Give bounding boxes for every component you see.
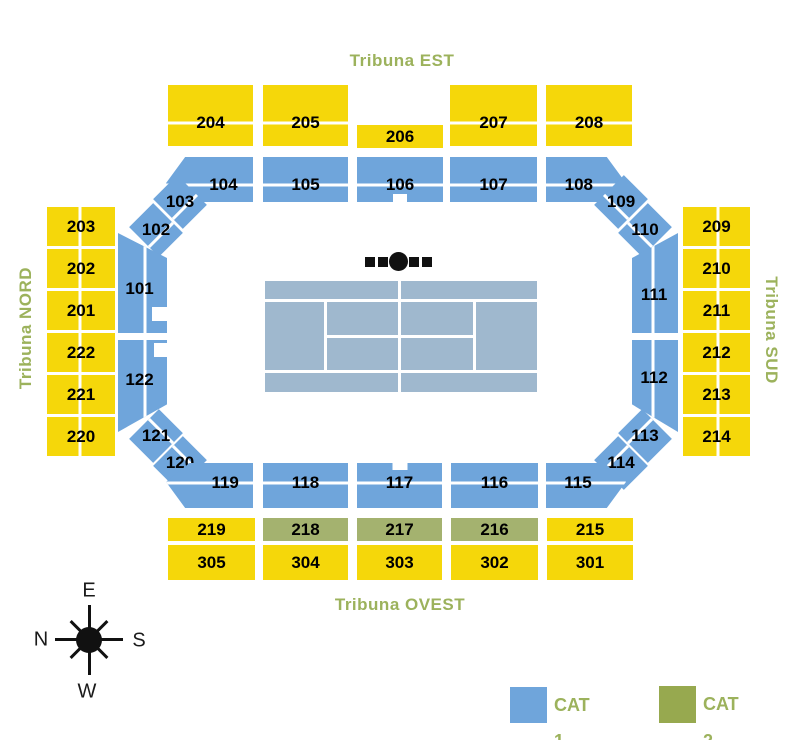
section-label: 205 xyxy=(291,113,319,133)
court-top-alley-line xyxy=(265,299,537,302)
section-label: 112 xyxy=(640,368,667,388)
section-label: 104 xyxy=(209,175,237,195)
section-301[interactable]: 301 xyxy=(547,545,633,580)
section-label: 107 xyxy=(479,175,507,195)
section-217[interactable]: 217 xyxy=(357,518,442,541)
section-label: 204 xyxy=(196,113,224,133)
section-208[interactable]: 208 xyxy=(546,85,632,146)
section-label: 105 xyxy=(291,175,319,195)
section-214[interactable]: 214 xyxy=(683,417,750,456)
marker-square xyxy=(378,257,388,267)
section-216[interactable]: 216 xyxy=(451,518,538,541)
section-label: 220 xyxy=(67,427,95,447)
tribuna-est-label: Tribuna EST xyxy=(350,51,455,71)
section-label: 118 xyxy=(292,473,319,493)
compass-letter-s: S xyxy=(132,630,145,653)
section-218[interactable]: 218 xyxy=(263,518,348,541)
section-212[interactable]: 212 xyxy=(683,333,750,372)
section-label: 110 xyxy=(631,220,658,240)
section-label: 212 xyxy=(702,343,730,363)
section-303[interactable]: 303 xyxy=(357,545,442,580)
section-label: 217 xyxy=(385,520,413,540)
section-107[interactable]: 107 xyxy=(450,157,537,202)
court-center-service-line xyxy=(326,335,475,338)
section-label: 305 xyxy=(197,553,225,573)
compass-hub xyxy=(76,627,102,653)
section-label: 122 xyxy=(125,370,153,390)
tennis-court xyxy=(265,281,537,392)
section-label: 202 xyxy=(67,259,95,279)
tribuna-nord-label: Tribuna NORD xyxy=(16,267,36,389)
section-220[interactable]: 220 xyxy=(47,417,115,456)
section-221[interactable]: 221 xyxy=(47,375,115,414)
section-label: 215 xyxy=(576,520,604,540)
section-305[interactable]: 305 xyxy=(168,545,255,580)
tribuna-ovest-label: Tribuna OVEST xyxy=(335,595,465,615)
section-210[interactable]: 210 xyxy=(683,249,750,288)
tribuna-sud-label: Tribuna SUD xyxy=(761,276,781,384)
section-label: 207 xyxy=(479,113,507,133)
section-label: 211 xyxy=(703,301,730,321)
section-304[interactable]: 304 xyxy=(263,545,348,580)
entrance-notch xyxy=(154,343,167,357)
section-204[interactable]: 204 xyxy=(168,85,253,146)
section-label: 115 xyxy=(564,473,591,493)
section-label: 108 xyxy=(565,175,593,195)
marker-square xyxy=(422,257,432,267)
section-117[interactable]: 117 xyxy=(357,463,442,508)
walkway-divider xyxy=(651,233,654,333)
section-label: 302 xyxy=(480,553,508,573)
section-label: 216 xyxy=(480,520,508,540)
section-222[interactable]: 222 xyxy=(47,333,115,372)
legend-swatch-cat2 xyxy=(659,686,696,723)
section-label: 121 xyxy=(142,426,170,446)
marker-square xyxy=(409,257,419,267)
section-302[interactable]: 302 xyxy=(451,545,538,580)
section-label: 209 xyxy=(702,217,730,237)
legend-label-cat1: CAT 1 xyxy=(554,687,590,740)
section-label: 111 xyxy=(641,285,668,305)
section-label: 103 xyxy=(166,192,194,212)
compass-letter-e: E xyxy=(82,580,95,603)
section-106[interactable]: 106 xyxy=(357,157,443,202)
court-bottom-alley-line xyxy=(265,370,537,373)
section-207[interactable]: 207 xyxy=(450,85,537,146)
section-213[interactable]: 213 xyxy=(683,375,750,414)
section-label: 206 xyxy=(386,127,414,147)
section-label: 301 xyxy=(576,553,604,573)
section-label: 219 xyxy=(197,520,225,540)
section-116[interactable]: 116 xyxy=(451,463,538,508)
section-209[interactable]: 209 xyxy=(683,207,750,246)
compass-letter-w: W xyxy=(78,681,97,704)
section-label: 208 xyxy=(575,113,603,133)
section-203[interactable]: 203 xyxy=(47,207,115,246)
marker-square xyxy=(365,257,375,267)
entrance-notch xyxy=(393,194,407,202)
section-206[interactable]: 206 xyxy=(357,125,443,148)
section-219[interactable]: 219 xyxy=(168,518,255,541)
legend-label-cat2: CAT 2 xyxy=(703,686,739,740)
section-label: 201 xyxy=(67,301,95,321)
section-label: 102 xyxy=(142,220,170,240)
section-label: 213 xyxy=(702,385,730,405)
entrance-notch xyxy=(392,463,407,470)
legend-swatch-cat1 xyxy=(510,687,547,723)
umpire-circle-icon xyxy=(389,252,408,271)
section-label: 109 xyxy=(607,192,635,212)
section-label: 214 xyxy=(702,427,730,447)
section-label: 218 xyxy=(291,520,319,540)
section-label: 210 xyxy=(702,259,730,279)
section-label: 304 xyxy=(291,553,319,573)
section-105[interactable]: 105 xyxy=(263,157,348,202)
compass-letter-n: N xyxy=(34,629,48,652)
walkway-divider xyxy=(166,481,253,484)
entrance-notch xyxy=(152,307,167,321)
section-label: 101 xyxy=(125,279,153,299)
section-205[interactable]: 205 xyxy=(263,85,348,146)
section-label: 117 xyxy=(386,473,413,493)
section-215[interactable]: 215 xyxy=(547,518,633,541)
section-202[interactable]: 202 xyxy=(47,249,115,288)
section-label: 222 xyxy=(67,343,95,363)
seating-map: Tribuna EST Tribuna NORD Tribuna SUD Tri… xyxy=(0,0,800,740)
section-label: 203 xyxy=(67,217,95,237)
section-label: 106 xyxy=(386,175,414,195)
section-118[interactable]: 118 xyxy=(263,463,348,508)
section-label: 119 xyxy=(211,473,238,493)
section-label: 303 xyxy=(385,553,413,573)
section-label: 113 xyxy=(631,426,658,446)
section-211[interactable]: 211 xyxy=(683,291,750,330)
section-201[interactable]: 201 xyxy=(47,291,115,330)
section-label: 116 xyxy=(481,473,508,493)
section-label: 221 xyxy=(67,385,95,405)
